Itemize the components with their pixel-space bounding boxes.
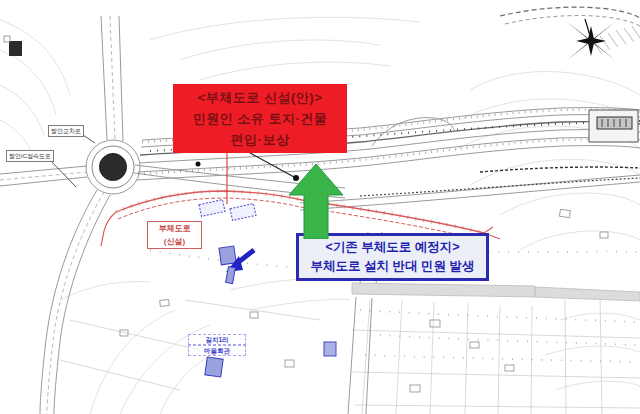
access-road-label: 발안IC접속도로 bbox=[6, 150, 54, 162]
new-road-callout-line1: <부체도로 신설(안)> bbox=[198, 87, 322, 108]
highlight-arrow bbox=[289, 164, 343, 239]
site-plan-screenshot: 발안교차로 발안IC접속도로 부체도로 (신설) 길지1리 마을회관 <부체도로… bbox=[0, 0, 640, 414]
new-road-tag-line2: (신설) bbox=[148, 235, 201, 248]
new-road-tag-line1: 부체도로 bbox=[148, 222, 201, 235]
existing-road-callout-line2: 부체도로 설치 반대 민원 발생 bbox=[311, 257, 475, 276]
village-hall-line1: 길지1리 bbox=[188, 334, 246, 345]
new-road-callout: <부체도로 신설(안)> 민원인 소유 토지·건물 편입·보상 bbox=[173, 84, 347, 153]
new-road-tag: 부체도로 (신설) bbox=[147, 221, 202, 249]
village-hall-label: 길지1리 마을회관 bbox=[188, 334, 246, 356]
building-block-right bbox=[589, 110, 638, 142]
village-hall-line2: 마을회관 bbox=[188, 345, 246, 356]
new-road-callout-line2: 민원인 소유 토지·건물 bbox=[193, 108, 328, 129]
new-road-callout-line3: 편입·보상 bbox=[231, 129, 290, 150]
existing-road-callout-line1: <기존 부체도로 예정지> bbox=[325, 238, 459, 257]
junction-label-text: 발안교차로 bbox=[51, 128, 81, 134]
up-arrow-icon bbox=[289, 164, 343, 239]
parcel-lines bbox=[60, 296, 640, 414]
compass-icon bbox=[567, 19, 615, 60]
roundabout bbox=[86, 140, 140, 194]
access-road-label-text: 발안IC접속도로 bbox=[9, 153, 51, 159]
lower-street bbox=[352, 283, 640, 301]
junction-label: 발안교차로 bbox=[48, 125, 84, 137]
existing-road-callout: <기존 부체도로 예정지> 부체도로 설치 반대 민원 발생 bbox=[296, 233, 489, 281]
